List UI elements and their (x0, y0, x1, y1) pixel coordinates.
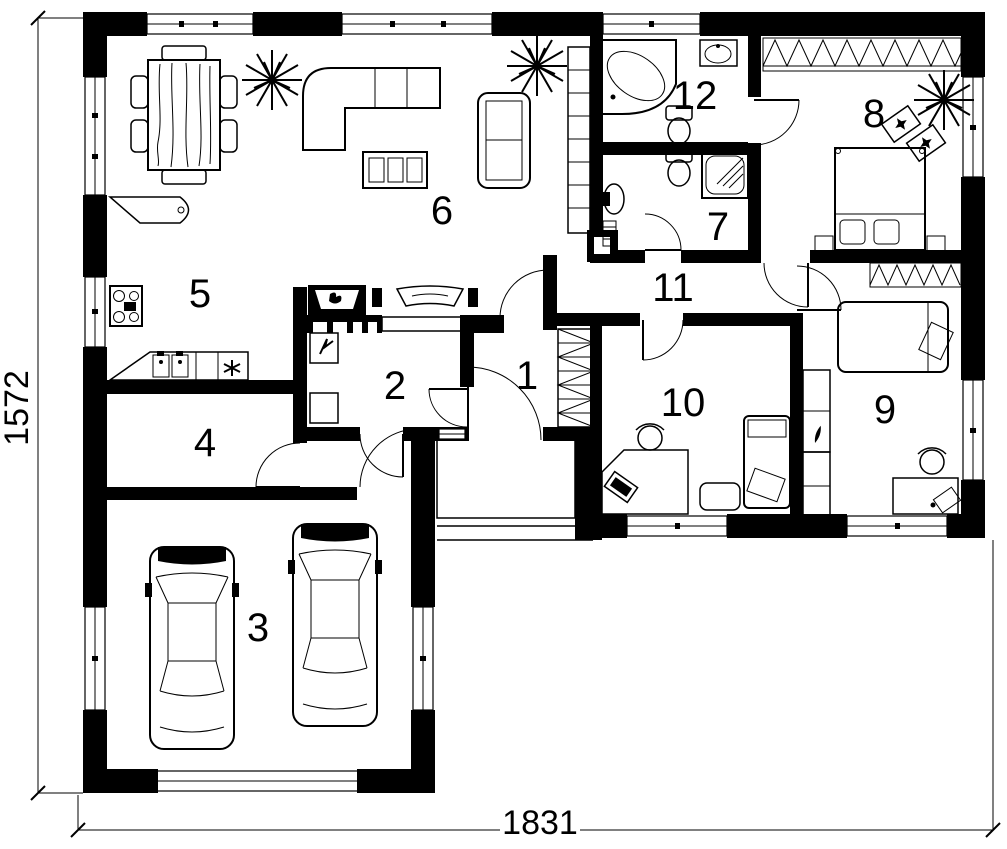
door-icon (764, 263, 808, 307)
door-icon (643, 320, 683, 360)
room-label-6: 6 (431, 189, 453, 233)
stove (110, 286, 142, 326)
plant-icon (242, 50, 302, 110)
door-icon (500, 270, 548, 318)
door-icon (360, 434, 403, 477)
window-icon (85, 77, 105, 195)
plant-icon (507, 36, 567, 96)
bed (744, 416, 790, 508)
bed (838, 302, 953, 372)
width-dimension-label: 1831 (502, 804, 578, 842)
desk (602, 424, 688, 514)
washbasin (603, 184, 624, 214)
kitchen-peninsula (110, 197, 189, 223)
corner-bathtub (598, 40, 676, 114)
room-label-3: 3 (247, 606, 269, 650)
window-icon (85, 277, 105, 347)
window-icon (963, 77, 983, 177)
room-label-2: 2 (384, 364, 406, 408)
kitchen-counter (110, 351, 248, 380)
window-icon (847, 516, 947, 536)
room-label-10: 10 (661, 381, 706, 425)
window-icon (85, 607, 105, 710)
corner-sofa (303, 68, 440, 150)
desk (893, 448, 961, 514)
hall-wardrobe (558, 329, 594, 427)
window-icon (603, 14, 700, 34)
floor-plan-page: 1 2 3 4 5 6 7 8 9 10 11 12 1572 1831 (0, 0, 1007, 849)
car-icon (288, 524, 382, 726)
porch-steps (437, 441, 593, 540)
room-label-9: 9 (874, 388, 896, 432)
walls (83, 12, 985, 793)
width-dimension: 1831 (71, 540, 1000, 842)
room-label-4: 4 (194, 421, 216, 465)
window-icon (963, 380, 983, 480)
window-icon (342, 14, 492, 34)
room-label-5: 5 (189, 272, 211, 316)
door-icon (256, 443, 300, 487)
floor-plan-drawing: 1 2 3 4 5 6 7 8 9 10 11 12 1572 1831 (0, 0, 1007, 849)
wardrobe (870, 263, 961, 287)
garage-door-icon (150, 769, 365, 793)
room-label-11: 11 (652, 266, 694, 310)
washbasin (700, 40, 737, 66)
room-label-1: 1 (516, 354, 538, 398)
double-bed (815, 148, 945, 254)
sidelight-window-icon (439, 429, 465, 439)
window-icon (147, 14, 253, 34)
tall-cabinet (803, 370, 830, 520)
shower (702, 152, 748, 198)
window-icon (413, 607, 433, 710)
fireplace (308, 285, 366, 315)
height-dimension-label: 1572 (0, 370, 36, 446)
loveseat (478, 93, 530, 188)
door-icon (754, 100, 799, 145)
shelf-unit (568, 47, 590, 233)
room-label-7: 7 (707, 205, 729, 249)
window-icon (627, 516, 727, 536)
door-icon (429, 389, 467, 427)
wardrobe (763, 38, 961, 71)
coffee-table (363, 152, 427, 188)
height-dimension: 1572 (0, 11, 83, 800)
room-label-12: 12 (673, 74, 718, 118)
boiler (310, 333, 338, 423)
door-icon (797, 266, 841, 310)
tv (372, 286, 478, 307)
dining-table (131, 46, 237, 184)
bench (700, 483, 740, 510)
door-icon (645, 214, 681, 250)
car-icon (145, 547, 239, 749)
room-label-8: 8 (863, 92, 885, 136)
